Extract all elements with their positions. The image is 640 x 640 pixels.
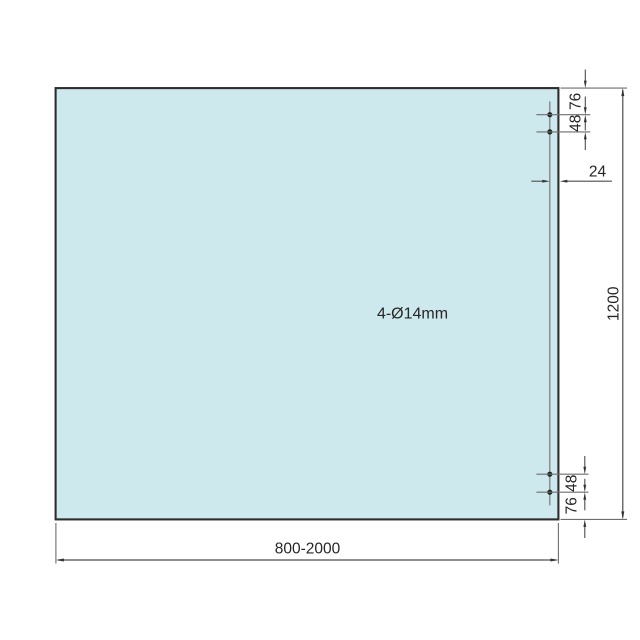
svg-text:48: 48 (564, 475, 581, 492)
svg-text:24: 24 (589, 164, 607, 181)
svg-text:1200: 1200 (606, 286, 623, 321)
svg-text:76: 76 (564, 497, 581, 514)
svg-text:76: 76 (568, 93, 585, 110)
svg-text:800-2000: 800-2000 (275, 541, 341, 558)
svg-text:48: 48 (568, 115, 585, 132)
svg-text:4-Ø14mm: 4-Ø14mm (377, 306, 448, 323)
